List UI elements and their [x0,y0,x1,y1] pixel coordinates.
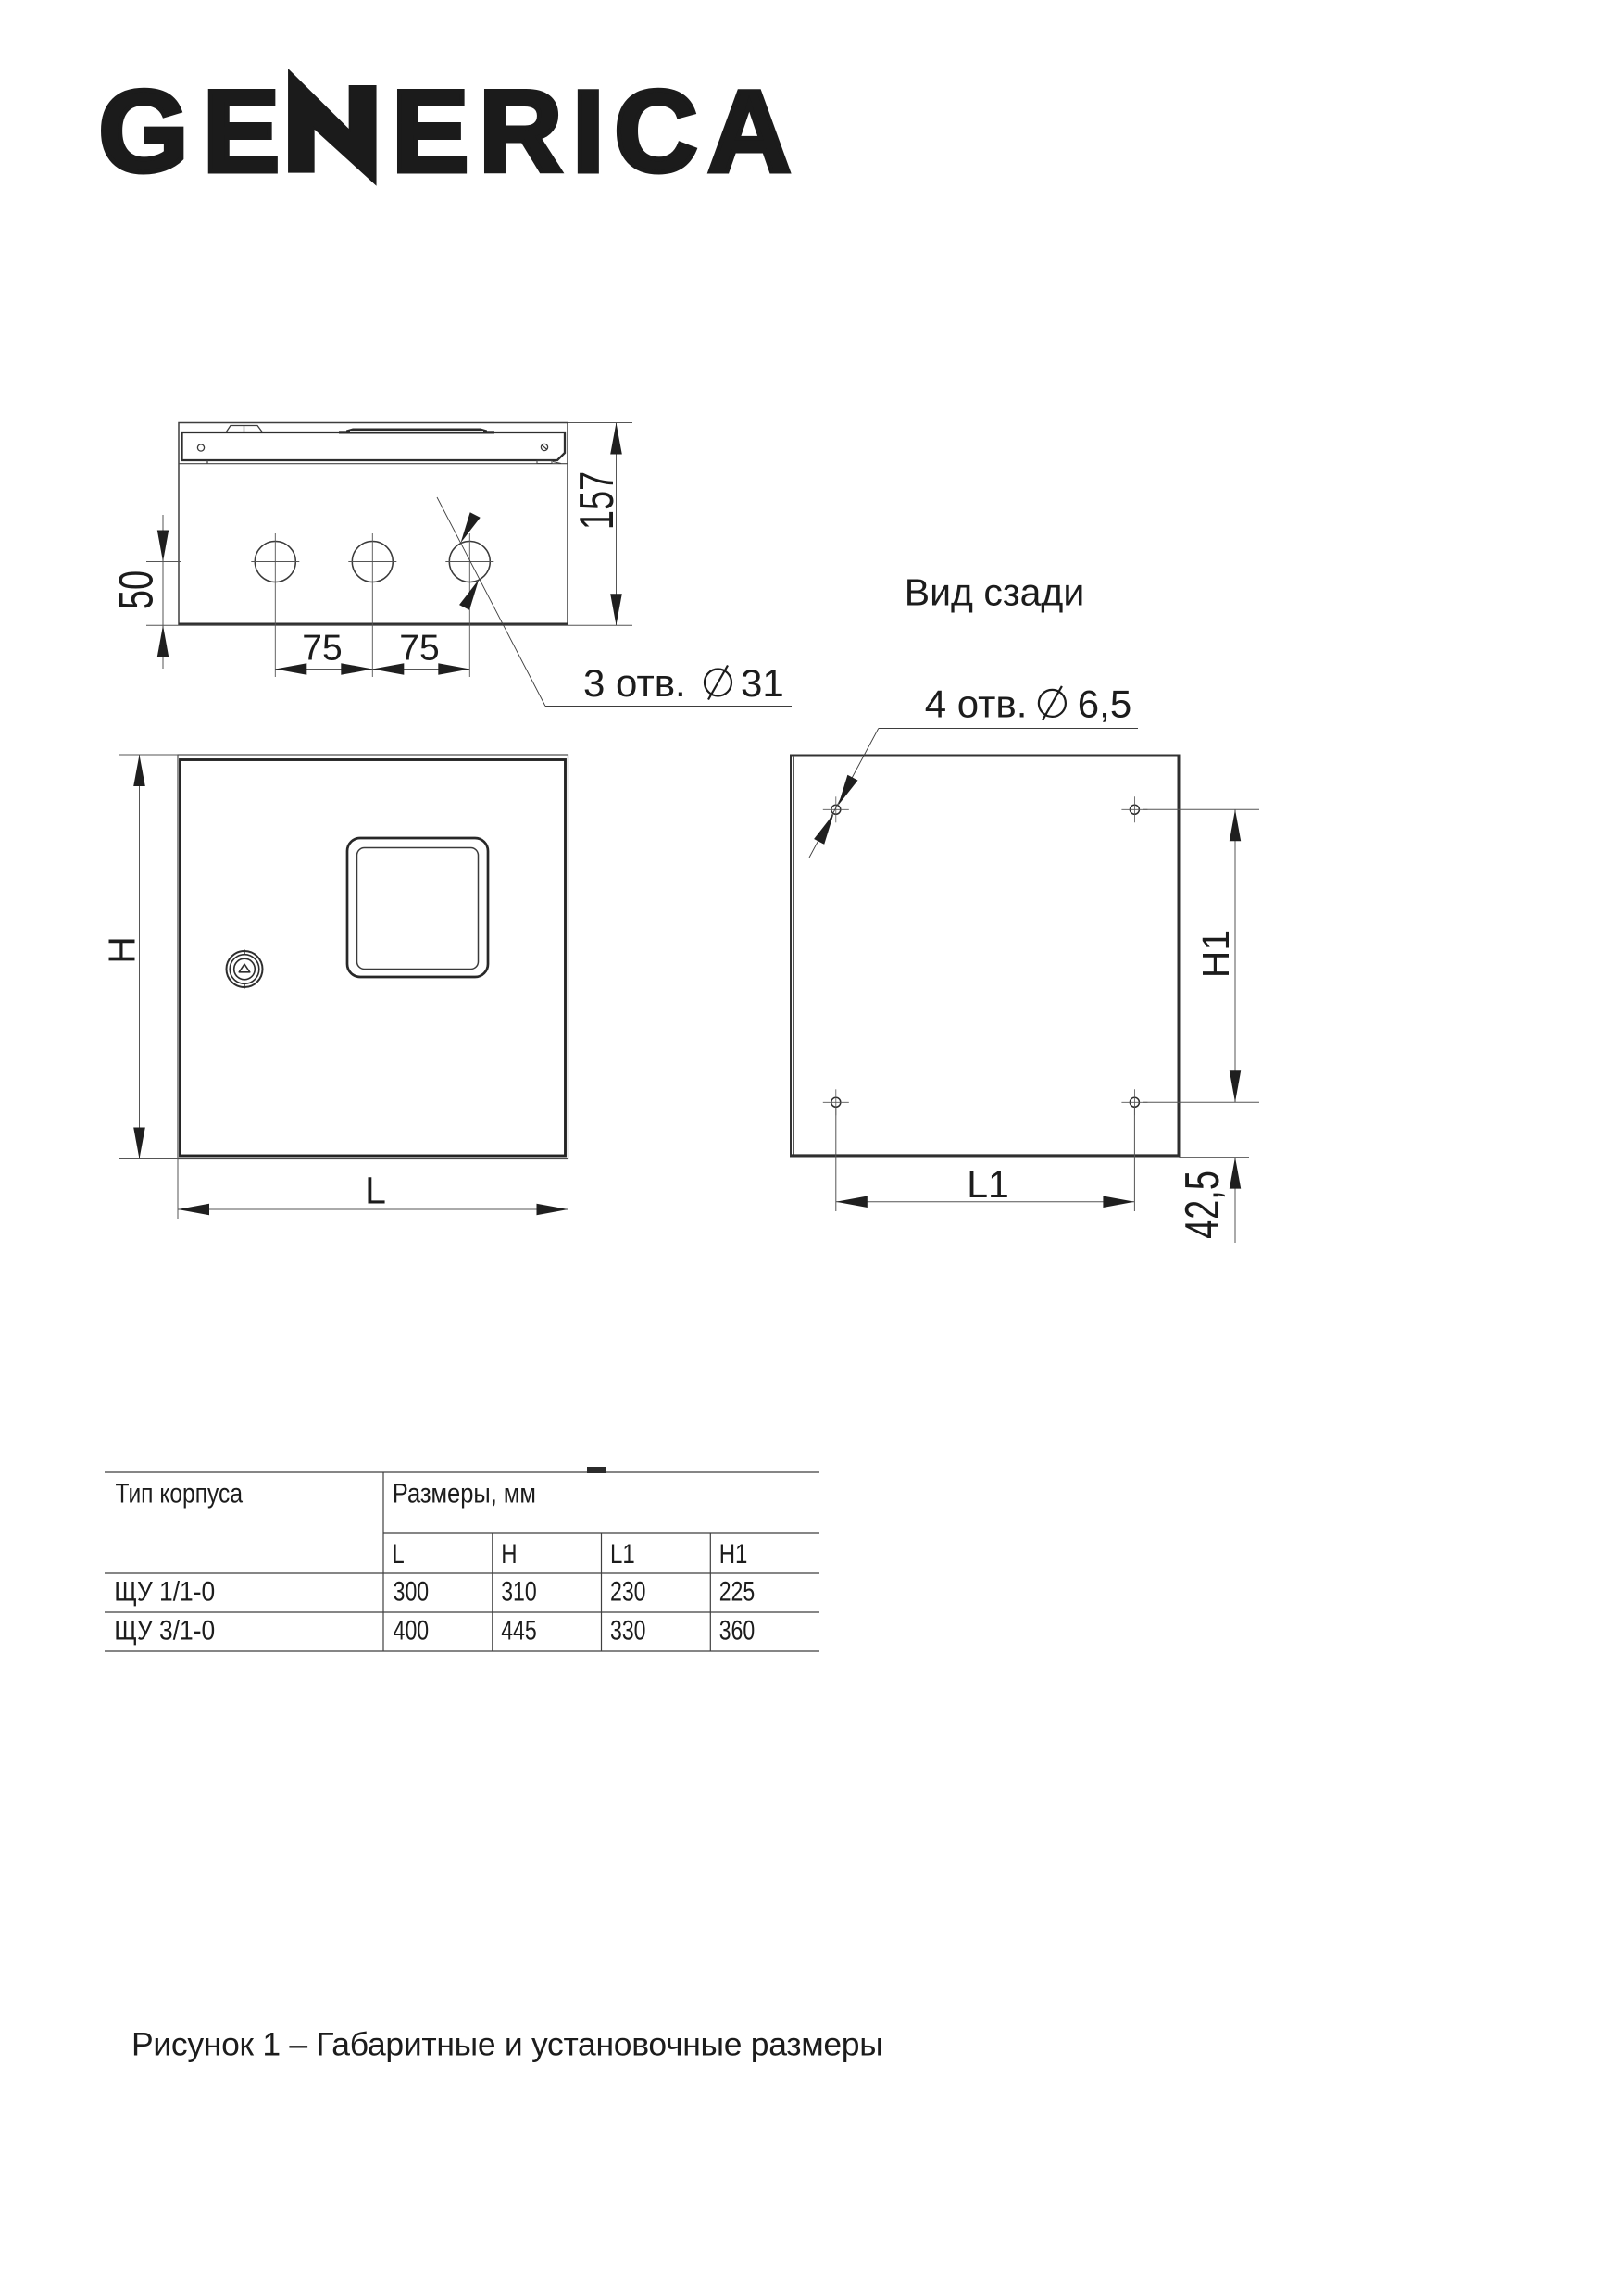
svg-text:L1: L1 [610,1537,635,1569]
svg-text:42,5: 42,5 [1175,1171,1229,1239]
svg-text:ЩУ 1/1-0: ЩУ 1/1-0 [114,1575,215,1607]
svg-text:H: H [501,1537,517,1569]
svg-text:445: 445 [501,1615,537,1646]
svg-text:230: 230 [610,1576,646,1608]
svg-text:75: 75 [399,629,439,669]
svg-text:75: 75 [302,629,342,669]
svg-text:3 отв.: 3 отв. [583,661,686,705]
svg-text:31: 31 [741,661,784,705]
svg-text:L1: L1 [967,1163,1009,1206]
svg-text:400: 400 [394,1615,430,1646]
svg-text:Тип корпуса: Тип корпуса [116,1477,244,1509]
svg-text:330: 330 [610,1615,646,1646]
svg-text:225: 225 [719,1576,756,1608]
svg-text:H: H [101,936,144,964]
svg-text:Рисунок 1 – Габаритные и устан: Рисунок 1 – Габаритные и установочные ра… [131,2026,882,2063]
svg-text:L: L [365,1170,386,1212]
svg-text:50: 50 [109,570,163,609]
svg-text:157: 157 [569,471,623,530]
svg-text:H1: H1 [1194,930,1237,978]
svg-text:L: L [392,1537,404,1569]
svg-text:310: 310 [501,1576,537,1608]
svg-text:GE: GE [98,68,294,196]
svg-text:6,5: 6,5 [1078,682,1131,725]
svg-text:Вид сзади: Вид сзади [905,571,1085,614]
svg-text:ERICA: ERICA [392,68,801,196]
svg-text:Размеры, мм: Размеры, мм [393,1478,536,1509]
svg-text:H1: H1 [719,1537,748,1569]
svg-text:360: 360 [719,1615,756,1646]
svg-text:4 отв.: 4 отв. [925,682,1028,725]
svg-text:300: 300 [394,1576,430,1608]
svg-text:ЩУ 3/1-0: ЩУ 3/1-0 [114,1614,215,1646]
